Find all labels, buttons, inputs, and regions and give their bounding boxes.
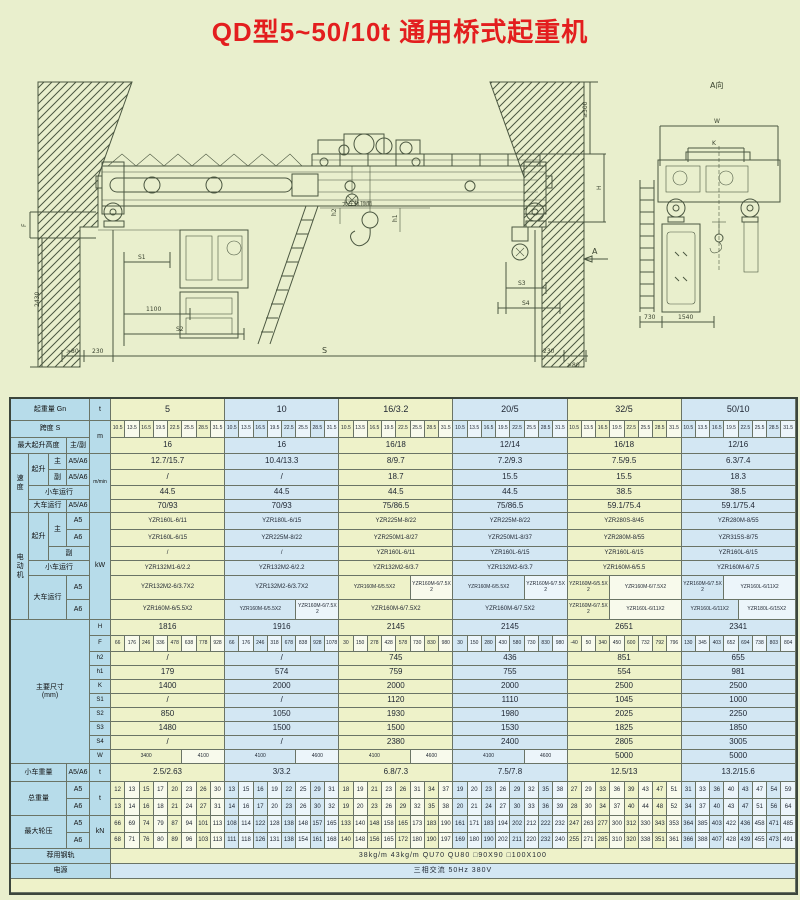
- row-label: A5/A6: [67, 470, 90, 486]
- table-cell: 148: [296, 816, 310, 833]
- dim-f: F: [21, 223, 28, 227]
- table-cell: 13.5: [354, 421, 368, 438]
- table-cell: 13: [125, 782, 139, 799]
- table-cell: 38.5: [682, 486, 796, 500]
- table-cell: 4100: [453, 750, 524, 764]
- row-label: 跨度 S: [11, 421, 90, 438]
- table-cell: 407: [710, 833, 724, 849]
- table-cell: 79: [154, 816, 168, 833]
- main-elevation-view: 大车轨顶面 h2 h1: [21, 82, 608, 369]
- table-cell: /: [225, 694, 339, 708]
- table-cell: 792: [653, 636, 667, 652]
- table-cell: 4600: [411, 750, 454, 764]
- table-cell: 59.1/75.4: [682, 500, 796, 513]
- dim-s3: S3: [518, 280, 526, 287]
- table-cell: 3005: [682, 736, 796, 750]
- table-cell: 70/93: [225, 500, 339, 513]
- table-cell: 179: [111, 666, 225, 680]
- table-cell: 1078: [325, 636, 339, 652]
- table-cell: 12/14: [453, 438, 567, 454]
- table-cell: 158: [382, 816, 396, 833]
- table-cell: 340: [596, 636, 610, 652]
- table-cell: 1045: [568, 694, 682, 708]
- table-cell: 1500: [339, 722, 453, 736]
- table-cell: YZR160L-6/15: [111, 530, 225, 547]
- dim-230-left: 230: [92, 348, 104, 355]
- table-cell: 29: [582, 782, 596, 799]
- table-cell: 278: [368, 636, 382, 652]
- table-cell: 64: [781, 799, 795, 816]
- table-cell: 70/93: [111, 500, 225, 513]
- dim-h1: h1: [392, 214, 399, 222]
- table-cell: 19.5: [496, 421, 510, 438]
- table-cell: 2000: [339, 680, 453, 694]
- table-cell: /: [225, 547, 339, 561]
- table-cell: 40: [710, 799, 724, 816]
- table-cell: YZR280S-8/45: [568, 513, 682, 530]
- crane-hook: [351, 228, 371, 246]
- table-cell: 24: [182, 799, 196, 816]
- table-cell: 27: [496, 799, 510, 816]
- table-cell: 59: [781, 782, 795, 799]
- table-cell: 803: [767, 636, 781, 652]
- table-cell: 31.5: [781, 421, 795, 438]
- table-cell: 220: [525, 833, 539, 849]
- table-cell: 345: [696, 636, 710, 652]
- table-cell: 23: [368, 799, 382, 816]
- table-cell: 30: [510, 799, 524, 816]
- table-cell: 21: [368, 782, 382, 799]
- row-label: 荐用钢轨: [11, 849, 111, 864]
- table-footer-spacer: [11, 879, 796, 893]
- table-cell: 27: [568, 782, 582, 799]
- dim-label: h2: [90, 652, 111, 666]
- table-cell: YZR160M-6/5.5X2: [568, 576, 611, 600]
- table-cell: 126: [254, 833, 268, 849]
- table-cell: 1500: [225, 722, 339, 736]
- table-cell: 87: [168, 816, 182, 833]
- table-cell: 10.5: [111, 421, 125, 438]
- table-cell: 10.4/13.3: [225, 454, 339, 470]
- table-cell: 190: [439, 816, 453, 833]
- table-cell: 18.7: [339, 470, 453, 486]
- table-cell: 25.5: [182, 421, 196, 438]
- rail-top-label: 大车轨顶面: [342, 200, 372, 208]
- table-cell: 1530: [453, 722, 567, 736]
- table-cell: 80: [154, 833, 168, 849]
- table-cell: 15.5: [568, 470, 682, 486]
- table-cell: 16.5: [368, 421, 382, 438]
- table-cell: 31: [682, 782, 696, 799]
- table-cell: 212: [525, 816, 539, 833]
- table-cell: 8/9.7: [339, 454, 453, 470]
- table-cell: 75/86.5: [453, 500, 567, 513]
- table-cell: 16: [254, 782, 268, 799]
- row-label: A5: [67, 816, 90, 833]
- table-cell: 32: [525, 782, 539, 799]
- table-cell: 364: [682, 816, 696, 833]
- table-cell: 1850: [682, 722, 796, 736]
- table-cell: 16/18: [339, 438, 453, 454]
- table-cell: YZR160M-6/7.5X2: [525, 576, 568, 600]
- table-cell: /: [111, 547, 225, 561]
- table-cell: 140: [339, 833, 353, 849]
- dim-label: S4: [90, 736, 111, 750]
- row-label: 最大轮压: [11, 816, 67, 849]
- table-cell: 19.5: [268, 421, 282, 438]
- table-cell: 52: [667, 799, 681, 816]
- row-label: A5: [67, 576, 90, 600]
- table-cell: 361: [667, 833, 681, 849]
- dim-span-s: S: [322, 346, 327, 355]
- row-label: 起升: [29, 513, 49, 561]
- table-cell: 43: [724, 799, 738, 816]
- table-cell: 156: [368, 833, 382, 849]
- table-cell: YZR160M-6/7.5X2: [411, 576, 454, 600]
- table-cell: 23: [282, 799, 296, 816]
- table-cell: 21: [168, 799, 182, 816]
- table-cell: 28.5: [539, 421, 553, 438]
- table-cell: 17: [154, 782, 168, 799]
- dim-2430: 2430: [34, 292, 41, 307]
- table-cell: 161: [453, 816, 467, 833]
- table-cell: 485: [781, 816, 795, 833]
- table-cell: 114: [239, 816, 253, 833]
- dim-label: S3: [90, 722, 111, 736]
- table-cell: 19: [453, 782, 467, 799]
- table-cell: 38: [553, 782, 567, 799]
- table-cell: YZR160M-6/5.5: [568, 561, 682, 576]
- table-cell: 23: [382, 782, 396, 799]
- table-cell: 29: [396, 799, 410, 816]
- row-label: 小车运行: [29, 561, 90, 576]
- table-cell: 19.5: [610, 421, 624, 438]
- table-cell: 22.5: [168, 421, 182, 438]
- table-cell: 36: [539, 799, 553, 816]
- table-cell: 30: [311, 799, 325, 816]
- table-cell: 133: [339, 816, 353, 833]
- table-cell: YZR132M1-6/2.2: [111, 561, 225, 576]
- table-cell: 122: [254, 816, 268, 833]
- dim-ge300: ≥300: [582, 101, 589, 118]
- table-cell: 113: [211, 833, 225, 849]
- table-cell: 39: [553, 799, 567, 816]
- dim-h2: h2: [331, 208, 338, 216]
- table-cell: 140: [354, 816, 368, 833]
- table-cell: 280: [482, 636, 496, 652]
- table-cell: 2.5/2.63: [111, 764, 225, 782]
- table-cell: 165: [325, 816, 339, 833]
- table-cell: 34: [425, 782, 439, 799]
- table-cell: 928: [311, 636, 325, 652]
- dim-s2: S2: [176, 326, 184, 333]
- table-cell: 16.5: [596, 421, 610, 438]
- table-cell: 928: [211, 636, 225, 652]
- table-cell: 1400: [111, 680, 225, 694]
- dim-label: S1: [90, 694, 111, 708]
- table-cell: 47: [739, 799, 753, 816]
- table-cell: 450: [610, 636, 624, 652]
- table-cell: 31: [325, 782, 339, 799]
- table-cell: YZR160M-6/5.5X2: [225, 600, 296, 620]
- table-cell: 981: [682, 666, 796, 680]
- table-cell: 35: [539, 782, 553, 799]
- table-cell: 47: [753, 782, 767, 799]
- table-cell: 1120: [339, 694, 453, 708]
- table-cell: 31.5: [325, 421, 339, 438]
- table-cell: YZR280M-8/55: [568, 530, 682, 547]
- table-cell: 25.5: [639, 421, 653, 438]
- table-cell: 38.5: [568, 486, 682, 500]
- table-cell: /: [111, 694, 225, 708]
- table-cell: 211: [510, 833, 524, 849]
- table-cell: /: [111, 736, 225, 750]
- table-cell: 202: [496, 833, 510, 849]
- table-cell: 25.5: [296, 421, 310, 438]
- table-cell: /: [225, 470, 339, 486]
- table-cell: 1050: [225, 708, 339, 722]
- table-cell: 5000: [568, 750, 682, 764]
- table-cell: 422: [724, 816, 738, 833]
- table-cell: 15: [239, 782, 253, 799]
- table-cell: 176: [239, 636, 253, 652]
- table-cell: 48: [653, 799, 667, 816]
- table-cell: 43: [739, 782, 753, 799]
- table-cell: 804: [781, 636, 795, 652]
- table-cell: 161: [311, 833, 325, 849]
- table-cell: 173: [411, 816, 425, 833]
- table-cell: 2341: [682, 620, 796, 636]
- table-cell: 16: [111, 438, 225, 454]
- table-cell: 169: [453, 833, 467, 849]
- row-label: 主: [49, 454, 67, 470]
- table-cell: 320: [625, 833, 639, 849]
- table-cell: 74: [140, 816, 154, 833]
- table-cell: 171: [468, 816, 482, 833]
- table-cell: 150: [468, 636, 482, 652]
- table-cell: 24: [482, 799, 496, 816]
- dim-gt80-right: >80: [567, 362, 580, 369]
- table-cell: 33: [525, 799, 539, 816]
- table-cell: 1110: [453, 694, 567, 708]
- table-cell: 19: [268, 782, 282, 799]
- table-cell: 39: [625, 782, 639, 799]
- table-cell: 473: [767, 833, 781, 849]
- section-label: 速度: [11, 454, 29, 513]
- hook-block: [362, 212, 378, 228]
- table-cell: 5000: [682, 750, 796, 764]
- table-cell: YZR160L-6/15: [568, 547, 682, 561]
- table-cell: 3/3.2: [225, 764, 339, 782]
- row-label: A5/A6: [67, 500, 90, 513]
- table-cell: 32: [411, 799, 425, 816]
- table-cell: 22.5: [739, 421, 753, 438]
- table-cell: 263: [582, 816, 596, 833]
- right-wall-hatch: [490, 82, 584, 367]
- table-cell: 28.5: [653, 421, 667, 438]
- table-cell: YZR250M1-8/37: [453, 530, 567, 547]
- table-cell: 353: [667, 816, 681, 833]
- table-cell: 30: [211, 782, 225, 799]
- table-cell: 15: [140, 782, 154, 799]
- row-label: A6: [67, 833, 90, 849]
- table-cell: 29: [311, 782, 325, 799]
- table-cell: YZR132M2-6/2.2: [225, 561, 339, 576]
- table-cell: 148: [368, 816, 382, 833]
- table-cell: 7.5/7.8: [453, 764, 567, 782]
- dim-s4: S4: [522, 300, 530, 307]
- table-cell: 94: [182, 816, 196, 833]
- table-cell: 428: [382, 636, 396, 652]
- table-cell: 22.5: [396, 421, 410, 438]
- table-cell: 16.5: [710, 421, 724, 438]
- table-cell: YZR180L-6/15X2: [739, 600, 796, 620]
- table-cell: 37: [610, 799, 624, 816]
- dim-label: F: [90, 636, 111, 652]
- table-cell: 2500: [568, 680, 682, 694]
- capacity-label: 起重量 Gn: [11, 399, 90, 421]
- table-cell: 15.5: [453, 470, 567, 486]
- view-a-label: A向: [710, 80, 723, 90]
- table-cell: 69: [125, 816, 139, 833]
- table-cell: 366: [682, 833, 696, 849]
- table-cell: 22.5: [282, 421, 296, 438]
- table-cell: 455: [753, 833, 767, 849]
- table-cell: 652: [724, 636, 738, 652]
- table-cell: 578: [396, 636, 410, 652]
- table-cell: 183: [482, 816, 496, 833]
- row-label: 大车运行: [29, 576, 67, 620]
- table-cell: 745: [339, 652, 453, 666]
- table-cell: 7.2/9.3: [453, 454, 567, 470]
- table-cell: 168: [325, 833, 339, 849]
- table-cell: 478: [168, 636, 182, 652]
- table-cell: 26: [197, 782, 211, 799]
- table-cell: 111: [225, 833, 239, 849]
- table-cell: 232: [553, 816, 567, 833]
- table-cell: 830: [539, 636, 553, 652]
- table-cell: 10.5: [339, 421, 353, 438]
- table-cell: 16.5: [254, 421, 268, 438]
- table-cell: 51: [753, 799, 767, 816]
- table-cell: YZR160M-6/7.5X2: [682, 576, 725, 600]
- table-cell: YZR160L-6/11: [111, 513, 225, 530]
- table-cell: 980: [439, 636, 453, 652]
- table-cell: 36: [710, 782, 724, 799]
- table-cell: 18: [154, 799, 168, 816]
- table-cell: 14: [225, 799, 239, 816]
- table-cell: 19.5: [382, 421, 396, 438]
- table-cell: 130: [682, 636, 696, 652]
- row-label: 副: [49, 547, 90, 561]
- table-cell: 32: [325, 799, 339, 816]
- table-cell: 37: [439, 782, 453, 799]
- table-cell: 18.3: [682, 470, 796, 486]
- table-cell: 10.5: [225, 421, 239, 438]
- table-cell: 44.5: [339, 486, 453, 500]
- table-cell: 1816: [111, 620, 225, 636]
- row-label: A5: [67, 513, 90, 530]
- dim-1540: 1540: [678, 314, 693, 321]
- spec-table: 起重量 Gnt51016/3.220/532/550/10跨度 Sm10.513…: [9, 397, 798, 895]
- table-cell: YZR132M2-6/3.7: [339, 561, 453, 576]
- section-arrow-label: A: [592, 247, 598, 256]
- spec-sheet-page: QD型5~50/10t 通用桥式起重机: [0, 0, 800, 900]
- table-cell: 10.5: [453, 421, 467, 438]
- table-cell: 850: [111, 708, 225, 722]
- table-cell: 14: [125, 799, 139, 816]
- table-cell: YZR225M-8/22: [225, 530, 339, 547]
- table-cell: 59.1/75.4: [568, 500, 682, 513]
- table-cell: 830: [425, 636, 439, 652]
- table-cell: 66: [225, 636, 239, 652]
- table-cell: 68: [111, 833, 125, 849]
- table-cell: YZR132M2-6/3.7X2: [111, 576, 225, 600]
- table-cell: 148: [354, 833, 368, 849]
- table-cell: 246: [140, 636, 154, 652]
- table-cell: 131: [268, 833, 282, 849]
- table-cell: 183: [425, 816, 439, 833]
- table-cell: 6.8/7.3: [339, 764, 453, 782]
- table-cell: 1930: [339, 708, 453, 722]
- table-cell: 300: [610, 816, 624, 833]
- table-cell: YZR160L-6/11X2: [610, 600, 681, 620]
- table-cell: 638: [182, 636, 196, 652]
- table-cell: 44: [639, 799, 653, 816]
- table-cell: /: [111, 470, 225, 486]
- table-cell: 22: [282, 782, 296, 799]
- table-cell: YZR225M-8/22: [339, 513, 453, 530]
- table-cell: 694: [739, 636, 753, 652]
- table-cell: 16/18: [568, 438, 682, 454]
- table-cell: 16.5: [140, 421, 154, 438]
- dim-gt80-left: >80: [66, 348, 79, 355]
- table-cell: 12: [111, 782, 125, 799]
- dim-label: h1: [90, 666, 111, 680]
- table-cell: 30: [339, 636, 353, 652]
- dim-label: K: [90, 680, 111, 694]
- table-cell: 26: [382, 799, 396, 816]
- table-cell: 66: [111, 816, 125, 833]
- table-cell: 12/16: [682, 438, 796, 454]
- table-cell: 35: [425, 799, 439, 816]
- row-label: 最大起升高度: [11, 438, 67, 454]
- table-cell: 28.5: [425, 421, 439, 438]
- table-cell: 10: [225, 399, 339, 421]
- table-cell: -40: [568, 636, 582, 652]
- table-cell: 403: [710, 636, 724, 652]
- table-cell: 25: [296, 782, 310, 799]
- side-section-view: A向 W K: [640, 80, 780, 328]
- unit-label: t: [90, 399, 111, 421]
- unit-label: kW: [90, 513, 111, 620]
- table-cell: 436: [739, 816, 753, 833]
- table-cell: 2145: [339, 620, 453, 636]
- table-cell: 165: [396, 816, 410, 833]
- table-cell: 403: [710, 816, 724, 833]
- table-cell: 796: [667, 636, 681, 652]
- table-cell: 138: [282, 816, 296, 833]
- table-cell: 980: [553, 636, 567, 652]
- table-cell: 66: [111, 636, 125, 652]
- table-cell: 554: [568, 666, 682, 680]
- table-cell: 28.5: [197, 421, 211, 438]
- table-cell: 25.5: [411, 421, 425, 438]
- table-cell: YZR160M-6/5.5X2: [453, 576, 524, 600]
- table-cell: 154: [296, 833, 310, 849]
- dim-label: W: [90, 750, 111, 764]
- table-cell: 4100: [339, 750, 410, 764]
